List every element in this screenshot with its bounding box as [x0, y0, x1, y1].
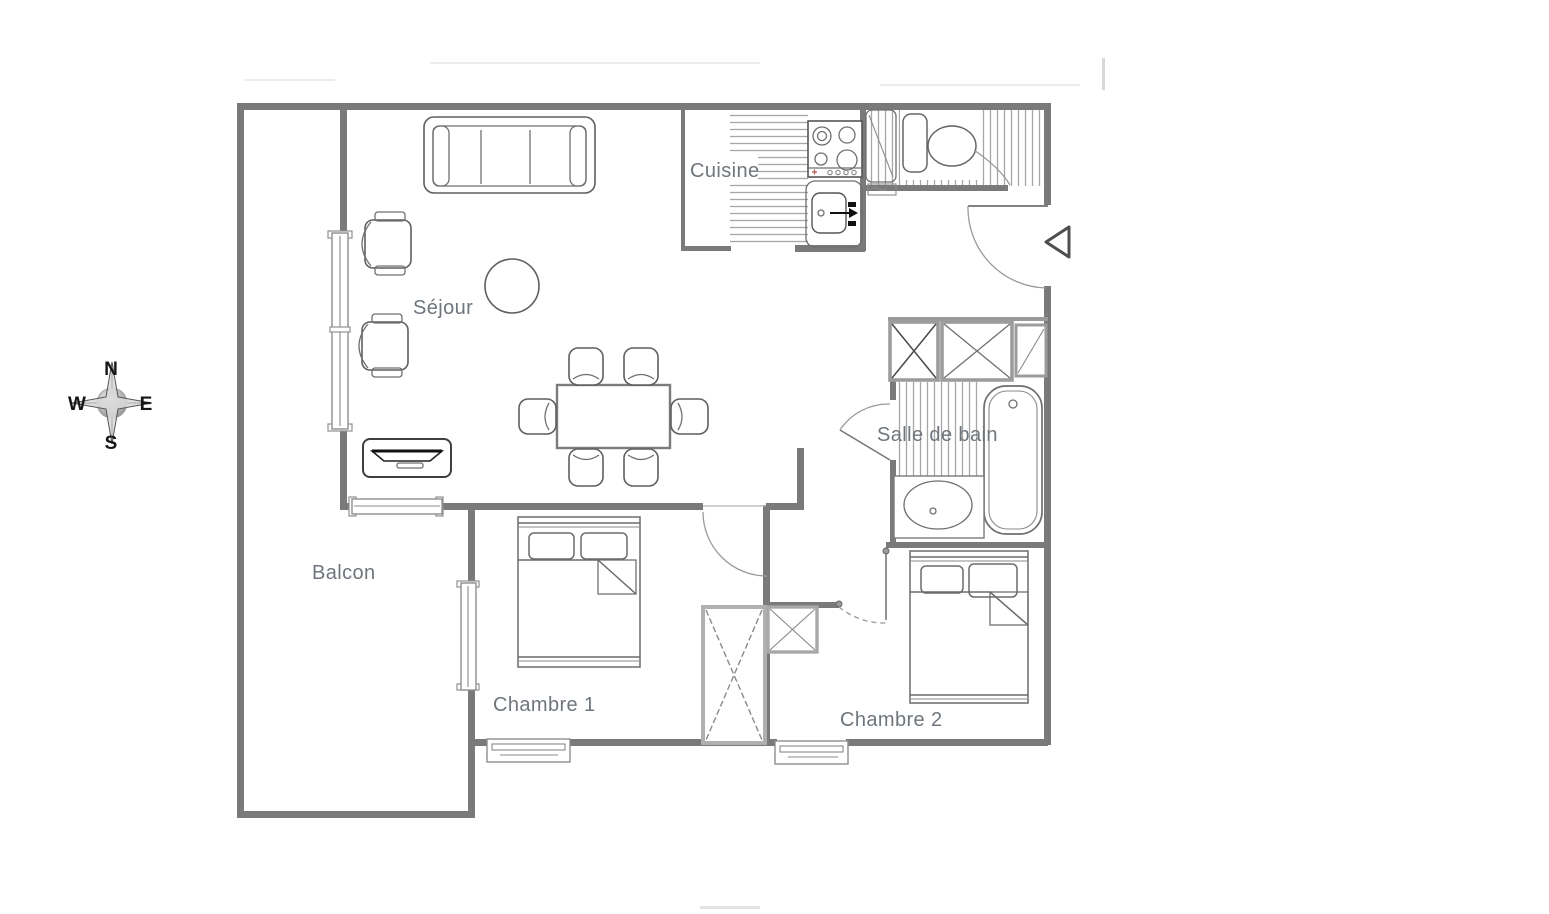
sejour-label: Séjour [413, 297, 473, 319]
window-sejour-west [328, 231, 352, 431]
window-sejour-balcony [349, 497, 443, 516]
dining-table [557, 385, 670, 448]
compass-east: E [140, 394, 153, 415]
window-chambre2-south [775, 741, 848, 764]
compass-rose: N W E S [68, 359, 152, 454]
window-chambre1-west [457, 581, 479, 690]
bath-cabinet-3 [1016, 325, 1046, 376]
bed-2 [910, 551, 1028, 703]
salle-de-bain-label: Salle de bain [877, 424, 998, 446]
entrance-door [968, 206, 1048, 288]
stove [808, 121, 862, 177]
wardrobe [703, 607, 765, 743]
bed-1 [518, 517, 640, 667]
bath-cabinet-2 [942, 322, 1012, 380]
chambre-2-label: Chambre 2 [840, 709, 943, 731]
armchair-2 [359, 314, 408, 377]
bath-washbasin [894, 476, 984, 538]
compass-north: N [104, 359, 118, 380]
compass-south: S [105, 433, 118, 454]
floor-plan: N W E S Cuisine Séjour Salle de bain Bal… [0, 0, 1549, 914]
tv-console [363, 439, 451, 477]
armchair-1 [362, 212, 411, 275]
cuisine-label: Cuisine [690, 160, 760, 182]
entrance-marker-icon [1046, 227, 1069, 257]
bath-cabinet-1 [890, 322, 938, 380]
floor-plan-svg: N W E S Cuisine Séjour Salle de bain Bal… [0, 0, 1549, 914]
window-chambre1-south [487, 739, 570, 762]
compass-west: W [68, 394, 86, 415]
balcon-label: Balcon [312, 562, 376, 584]
storage-box [768, 607, 817, 652]
chambre-1-label: Chambre 1 [493, 694, 596, 716]
chambre1-door [703, 506, 767, 576]
coffee-table [485, 259, 539, 313]
chambre2-door [836, 548, 889, 623]
kitchen-sink [806, 181, 862, 247]
sofa [424, 117, 595, 193]
bathtub [984, 386, 1042, 534]
